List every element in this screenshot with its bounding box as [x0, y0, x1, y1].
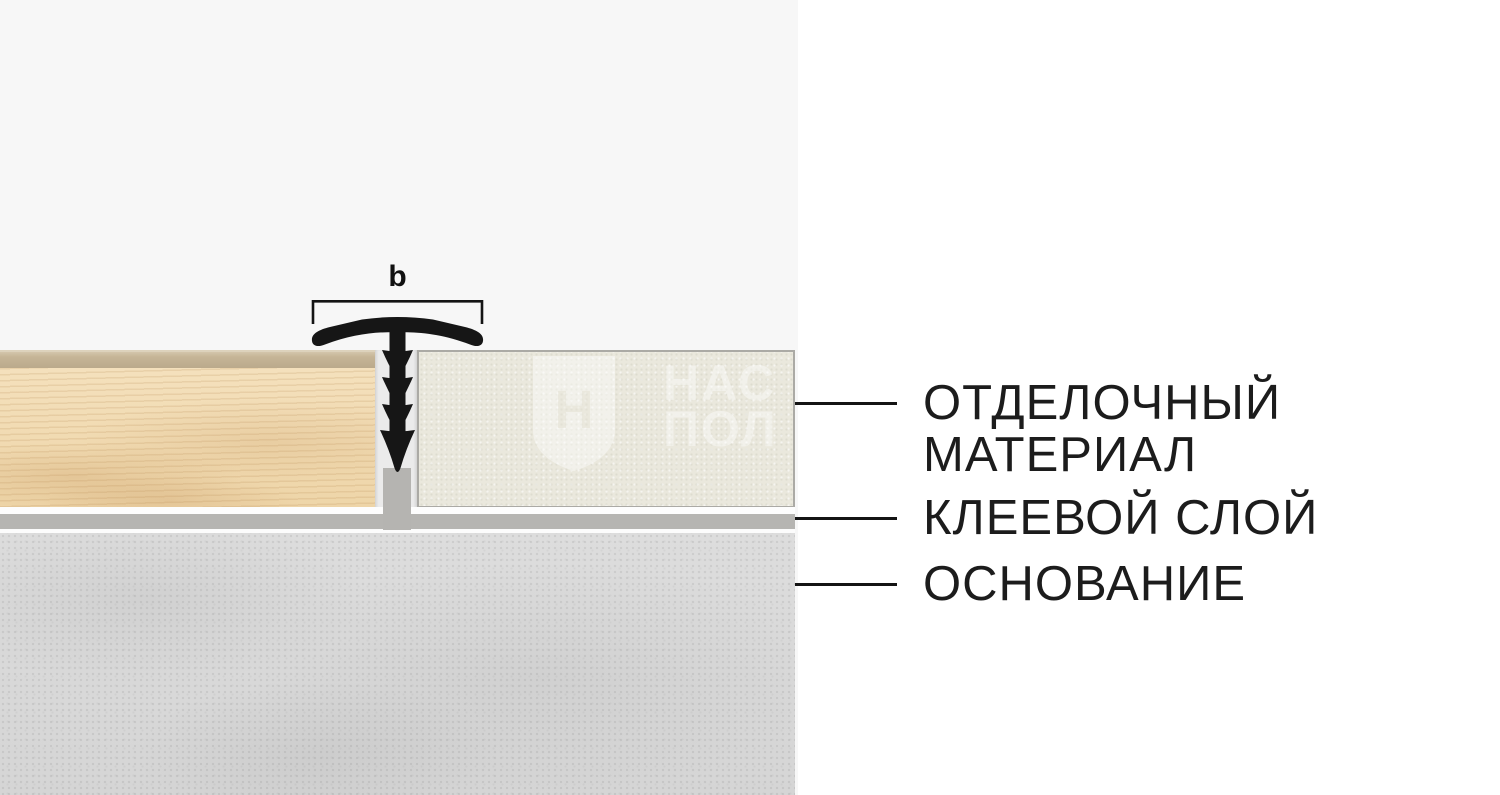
t-profile-drawing: [0, 0, 798, 795]
label-finish-material-line2: МАТЕРИАЛ: [923, 429, 1281, 481]
label-finish-material-line1: ОТДЕЛОЧНЫЙ: [923, 377, 1281, 429]
leader-line-adhesive-layer: [795, 517, 897, 520]
label-base-line1: ОСНОВАНИЕ: [923, 558, 1246, 610]
diagram-canvas: Н НАС ПОЛ b ОТДЕЛОЧНЫЙ МАТЕРИАЛ КЛЕ: [0, 0, 1500, 795]
label-adhesive-layer-line1: КЛЕЕВОЙ СЛОЙ: [923, 492, 1318, 544]
t-profile-shape: [312, 317, 483, 472]
diagram-panel: Н НАС ПОЛ b: [0, 0, 798, 795]
label-base: ОСНОВАНИЕ: [923, 558, 1246, 610]
label-finish-material: ОТДЕЛОЧНЫЙ МАТЕРИАЛ: [923, 377, 1281, 481]
dimension-label-b: b: [313, 260, 482, 294]
leader-line-finish-material: [795, 402, 897, 405]
leader-line-base: [795, 583, 897, 586]
label-adhesive-layer: КЛЕЕВОЙ СЛОЙ: [923, 492, 1318, 544]
